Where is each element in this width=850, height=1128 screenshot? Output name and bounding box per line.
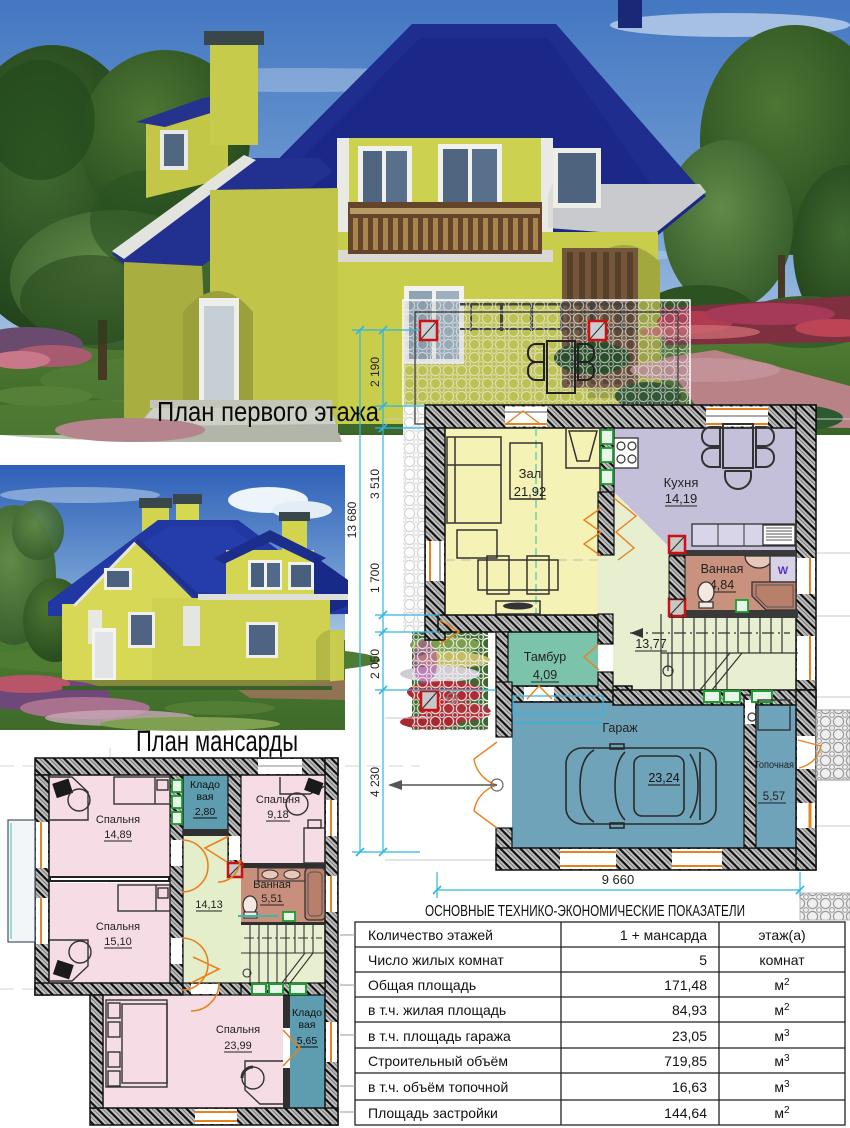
svg-text:в т.ч. площадь гаража: в т.ч. площадь гаража bbox=[368, 1028, 511, 1044]
svg-text:Кладо: Кладо bbox=[292, 1007, 322, 1019]
svg-text:5,57: 5,57 bbox=[763, 791, 785, 803]
svg-text:ОСНОВНЫЕ ТЕХНИКО-ЭКОНОМИЧЕСКИЕ: ОСНОВНЫЕ ТЕХНИКО-ЭКОНОМИЧЕСКИЕ ПОКАЗАТЕЛ… bbox=[425, 903, 745, 920]
svg-text:719,85: 719,85 bbox=[664, 1053, 707, 1069]
svg-text:5: 5 bbox=[699, 952, 707, 968]
svg-text:Площадь застройки: Площадь застройки bbox=[368, 1105, 498, 1121]
svg-text:План первого этажа: План первого этажа bbox=[157, 396, 379, 427]
svg-text:Общая площадь: Общая площадь bbox=[368, 977, 476, 993]
svg-text:вая: вая bbox=[197, 791, 214, 803]
svg-text:Зал: Зал bbox=[519, 466, 542, 481]
svg-text:Спальня: Спальня bbox=[96, 921, 140, 933]
svg-text:9 660: 9 660 bbox=[602, 872, 635, 887]
svg-text:4 230: 4 230 bbox=[368, 767, 382, 797]
svg-text:Ванная: Ванная bbox=[701, 562, 744, 576]
svg-text:Спальня: Спальня bbox=[256, 794, 300, 806]
svg-text:Спальня: Спальня bbox=[96, 814, 140, 826]
svg-text:144,64: 144,64 bbox=[664, 1105, 707, 1121]
svg-text:в т.ч. объём топочной: в т.ч. объём топочной bbox=[368, 1079, 508, 1095]
svg-text:13,77: 13,77 bbox=[635, 637, 666, 651]
svg-text:2 190: 2 190 bbox=[368, 357, 382, 387]
svg-text:15,10: 15,10 bbox=[104, 936, 132, 948]
svg-text:4,09: 4,09 bbox=[533, 668, 557, 682]
svg-text:комнат: комнат bbox=[759, 952, 805, 968]
svg-text:9,18: 9,18 bbox=[267, 809, 288, 821]
svg-text:в т.ч. жилая площадь: в т.ч. жилая площадь bbox=[368, 1002, 506, 1018]
svg-text:171,48: 171,48 bbox=[664, 977, 707, 993]
svg-text:План мансарды: План мансарды bbox=[136, 725, 298, 758]
svg-text:Ванная: Ванная bbox=[253, 879, 291, 891]
svg-text:23,99: 23,99 bbox=[224, 1040, 252, 1052]
svg-text:Количество этажей: Количество этажей bbox=[368, 927, 493, 943]
svg-text:23,24: 23,24 bbox=[648, 771, 679, 785]
svg-text:5,51: 5,51 bbox=[261, 893, 282, 905]
svg-text:Топочная: Топочная bbox=[754, 760, 794, 771]
svg-text:этаж(а): этаж(а) bbox=[758, 927, 805, 943]
svg-text:21,92: 21,92 bbox=[514, 484, 547, 499]
svg-text:вая: вая bbox=[299, 1019, 316, 1031]
svg-text:3 510: 3 510 bbox=[368, 469, 382, 499]
svg-text:14,13: 14,13 bbox=[195, 899, 223, 911]
svg-text:2,80: 2,80 bbox=[195, 806, 216, 818]
svg-text:Спальня: Спальня bbox=[216, 1024, 260, 1036]
svg-text:16,63: 16,63 bbox=[672, 1079, 707, 1095]
svg-text:2 050: 2 050 bbox=[368, 649, 382, 679]
svg-text:Число жилых комнат: Число жилых комнат bbox=[368, 952, 504, 968]
svg-text:84,93: 84,93 bbox=[672, 1002, 707, 1018]
svg-text:Кухня: Кухня bbox=[664, 475, 699, 490]
svg-text:5,65: 5,65 bbox=[297, 1035, 318, 1047]
svg-text:23,05: 23,05 bbox=[672, 1028, 707, 1044]
svg-text:13 680: 13 680 bbox=[345, 501, 359, 538]
svg-text:Кладо: Кладо bbox=[190, 779, 220, 791]
svg-text:Гараж: Гараж bbox=[602, 721, 638, 735]
svg-text:14,89: 14,89 bbox=[104, 829, 132, 841]
svg-text:Строительный объём: Строительный объём bbox=[368, 1053, 508, 1069]
svg-text:1 700: 1 700 bbox=[368, 563, 382, 593]
svg-text:14,19: 14,19 bbox=[665, 491, 698, 506]
svg-text:1 + мансарда: 1 + мансарда bbox=[620, 927, 707, 943]
svg-text:Тамбур: Тамбур bbox=[524, 650, 566, 664]
svg-text:W: W bbox=[778, 565, 789, 577]
